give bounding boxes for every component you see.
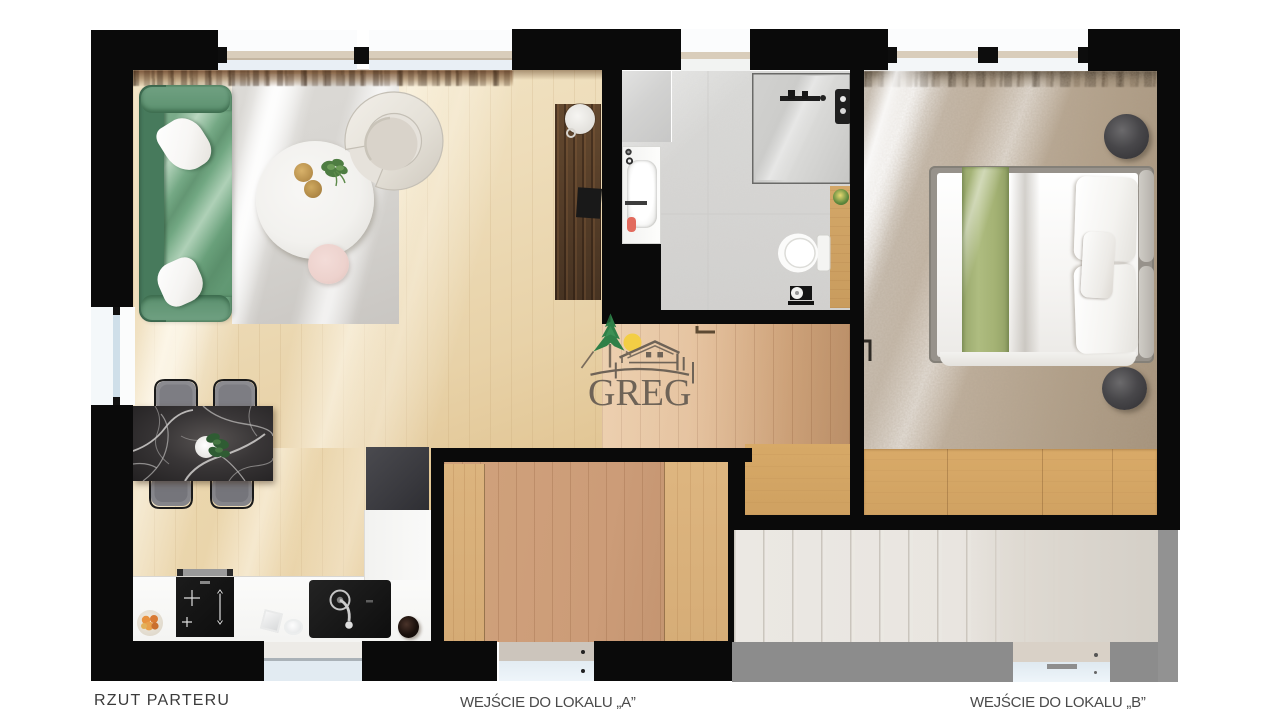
svg-text:GREG: GREG	[588, 372, 691, 410]
